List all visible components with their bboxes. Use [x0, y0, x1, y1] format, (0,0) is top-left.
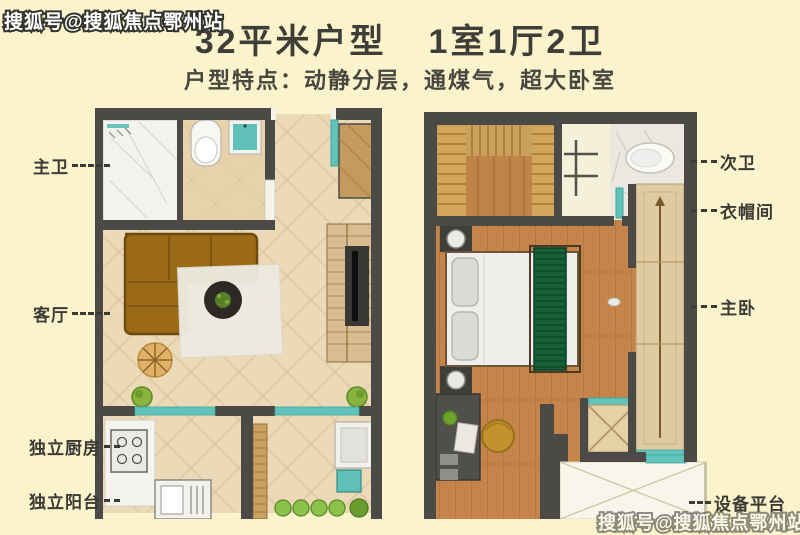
watermark-bottom: 搜狐号@搜狐焦点鄂州站 — [598, 509, 800, 535]
desk-chair — [482, 420, 514, 452]
plant-icon — [347, 387, 367, 407]
plant-icon — [132, 387, 152, 407]
room-label-living-room: 客厅 — [33, 301, 113, 326]
bathroom-door-leaf — [616, 188, 623, 218]
bed-runner — [534, 248, 566, 370]
upper-floor-plan — [424, 112, 707, 519]
room-label-master-bedroom: 主卧 — [688, 294, 756, 319]
entry-door-leaf — [331, 120, 338, 166]
lower-floor-plan — [95, 108, 382, 519]
leader-line — [104, 499, 120, 502]
leader-line — [691, 305, 717, 308]
watermark-top-left: 搜狐号@搜狐焦点鄂州站 — [4, 7, 224, 34]
entry-mat — [339, 124, 373, 198]
leader-line — [691, 160, 717, 163]
toilet-icon — [626, 143, 674, 173]
woven-screen — [253, 424, 267, 519]
room-label-balcony: 独立阳台 — [29, 488, 123, 513]
coffee-table — [204, 281, 242, 319]
bed — [446, 246, 580, 372]
page-subtitle: 户型特点：动静分层，通煤气，超大卧室 — [0, 63, 800, 95]
window-strip — [646, 455, 686, 463]
washing-machine-icon — [335, 422, 373, 468]
shower-stall — [588, 398, 635, 452]
desk-plant-icon — [443, 411, 457, 425]
door-jamb — [331, 108, 336, 120]
toilet-icon — [191, 120, 221, 166]
leader-line — [689, 501, 711, 504]
cloakroom — [636, 184, 684, 459]
room-label-second-bath: 次卫 — [688, 149, 756, 174]
leader-line — [104, 445, 120, 448]
floor-detail — [608, 298, 620, 306]
leader-line — [72, 312, 110, 315]
room-label-cloakroom: 衣帽间 — [688, 198, 774, 223]
room-label-kitchen: 独立厨房 — [29, 434, 123, 459]
wardrobe — [436, 124, 560, 220]
pillow — [452, 312, 478, 360]
nightstand — [440, 226, 472, 252]
desk — [436, 394, 480, 480]
leader-line — [691, 209, 717, 212]
room-label-master-bath: 主卫 — [33, 153, 113, 178]
balcony-sink-icon — [337, 470, 361, 492]
master-bathroom — [181, 114, 269, 224]
title-room-count: 1室1厅2卫 — [429, 23, 606, 61]
oven-icon — [155, 480, 211, 519]
sink-icon — [229, 120, 261, 154]
tv-cabinet — [345, 246, 369, 326]
nightstand — [440, 366, 472, 394]
round-side-table — [138, 343, 172, 377]
leader-line — [72, 164, 110, 167]
shower-area — [103, 120, 181, 224]
door-jamb — [271, 108, 276, 120]
pillow — [452, 258, 478, 306]
